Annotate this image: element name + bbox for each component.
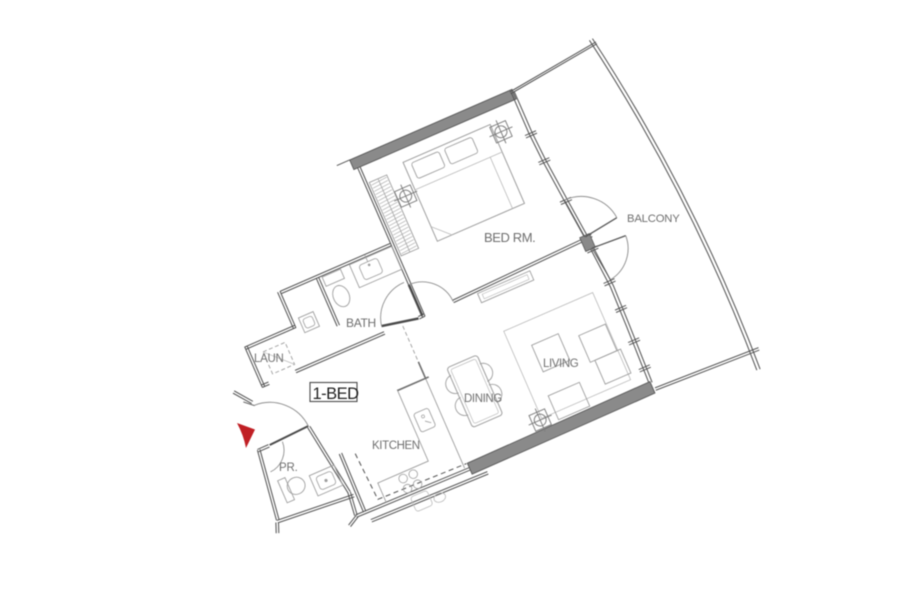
svg-text:BATH: BATH bbox=[346, 316, 376, 330]
svg-text:PR.: PR. bbox=[279, 462, 298, 474]
svg-text:DINING: DINING bbox=[464, 393, 502, 405]
svg-text:BALCONY: BALCONY bbox=[627, 213, 680, 225]
svg-text:1-BED: 1-BED bbox=[313, 385, 360, 403]
svg-text:LIVING: LIVING bbox=[543, 358, 579, 370]
svg-text:LAUN: LAUN bbox=[254, 353, 283, 365]
svg-text:KITCHEN: KITCHEN bbox=[372, 440, 420, 452]
svg-text:BED RM.: BED RM. bbox=[484, 230, 535, 245]
